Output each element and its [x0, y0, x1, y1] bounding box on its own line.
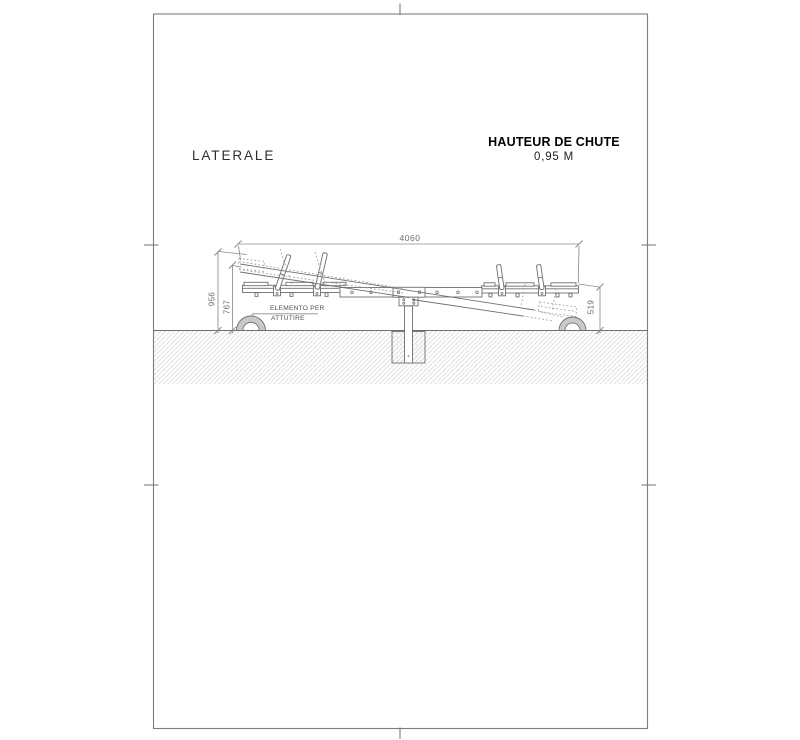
beam-foot: [516, 293, 519, 297]
foundation-anchor-dot: [408, 355, 410, 357]
ghost-beam-line: [534, 310, 564, 318]
dim-text-height-right: 519: [587, 300, 596, 315]
technical-drawing: [0, 0, 800, 740]
dim-text-overall-length: 4060: [400, 233, 421, 243]
fall-height-title: HAUTEUR DE CHUTE: [488, 135, 620, 149]
fall-height-value: 0,95 M: [488, 151, 620, 163]
pivot-bracket-bolt: [403, 302, 405, 304]
seat-pad: [244, 282, 268, 285]
beam-foot: [255, 293, 258, 297]
ghost-seat-right-joint: [541, 307, 576, 312]
dim-witness: [578, 246, 579, 283]
beam-foot: [489, 293, 492, 297]
beam-bolt: [351, 291, 354, 294]
tire-left: [237, 316, 266, 331]
beam-bolt: [476, 291, 479, 294]
seat-pad: [551, 283, 576, 286]
dim-witness: [233, 266, 242, 268]
beam-bolt: [436, 291, 439, 294]
handle-bracket-bolt: [316, 293, 318, 295]
seat-pad: [506, 283, 534, 286]
ghost-seat-left: [238, 259, 265, 272]
seat-pad: [484, 283, 495, 286]
view-title: LATERALE: [192, 148, 275, 163]
dim-witness: [239, 246, 241, 260]
tire-right: [559, 317, 586, 331]
beam-foot: [290, 293, 293, 297]
damper-label-line2: ATTUTIRE: [271, 315, 305, 322]
dim-witness: [219, 252, 248, 255]
beam-foot: [325, 293, 328, 297]
damper-label-line1: ELEMENTO PER: [270, 305, 325, 312]
handle-bracket-bolt: [541, 293, 543, 295]
seesaw-beam-assembly: [243, 282, 579, 306]
pivot-bracket-bolt: [403, 299, 405, 301]
dim-witness: [579, 284, 600, 287]
right-seat-plank: [482, 286, 579, 293]
beam-foot: [569, 293, 572, 297]
dim-text-height-max: 956: [207, 292, 216, 307]
ghost-beam-line: [523, 316, 553, 321]
dim-text-height-beam-end: 767: [223, 300, 232, 315]
handle-bracket-bolt: [501, 293, 503, 295]
fall-height-note: HAUTEUR DE CHUTE 0,95 M: [488, 135, 620, 163]
beam-bolt: [457, 291, 460, 294]
handle-bracket-bolt: [276, 293, 278, 295]
tilted-beam-bottom-edge-right: [412, 300, 523, 317]
pivot-bracket: [399, 297, 418, 306]
foundation-and-post: [392, 306, 425, 363]
pivot-post: [405, 306, 413, 363]
pivot-bracket-bolt: [413, 302, 415, 304]
beam-foot: [556, 293, 559, 297]
drawing-sheet: LATERALE HAUTEUR DE CHUTE 0,95 M 4060 95…: [0, 0, 800, 740]
